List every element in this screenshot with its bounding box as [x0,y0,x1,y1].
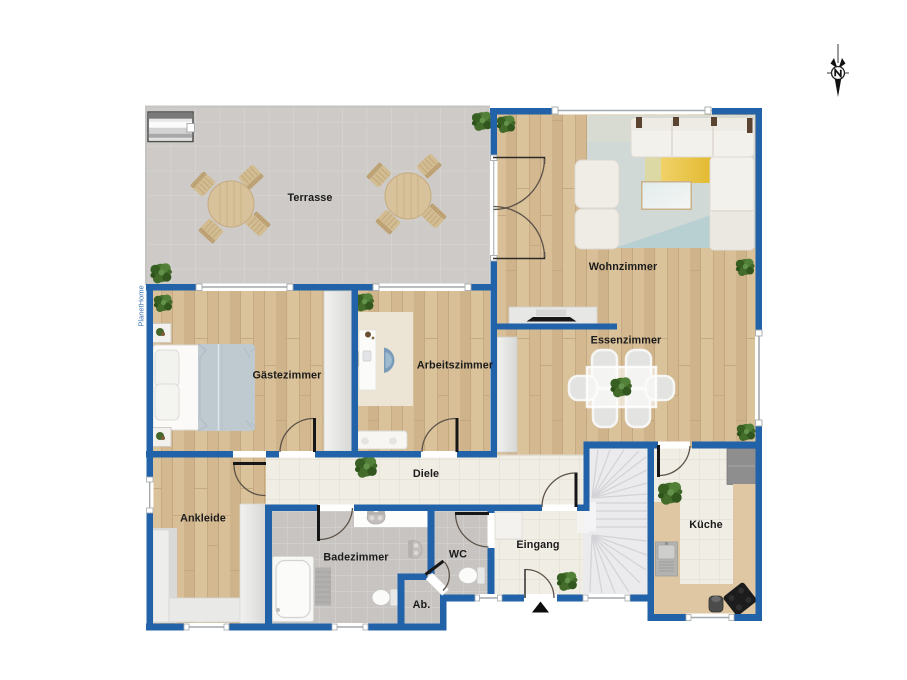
svg-text:WC: WC [449,549,467,561]
svg-text:Badezimmer: Badezimmer [323,552,389,564]
svg-text:Essenzimmer: Essenzimmer [591,335,662,347]
svg-text:Ankleide: Ankleide [180,513,226,525]
svg-text:Eingang: Eingang [516,539,559,551]
svg-text:Arbeitszimmer: Arbeitszimmer [417,360,494,372]
svg-text:Gästezimmer: Gästezimmer [253,370,323,382]
svg-text:PlanetHome: PlanetHome [137,285,146,326]
svg-text:Terrasse: Terrasse [287,192,332,204]
svg-text:Ab.: Ab. [413,599,431,611]
svg-text:Küche: Küche [689,519,723,531]
svg-text:Wohnzimmer: Wohnzimmer [589,261,658,273]
svg-text:Diele: Diele [413,468,439,480]
